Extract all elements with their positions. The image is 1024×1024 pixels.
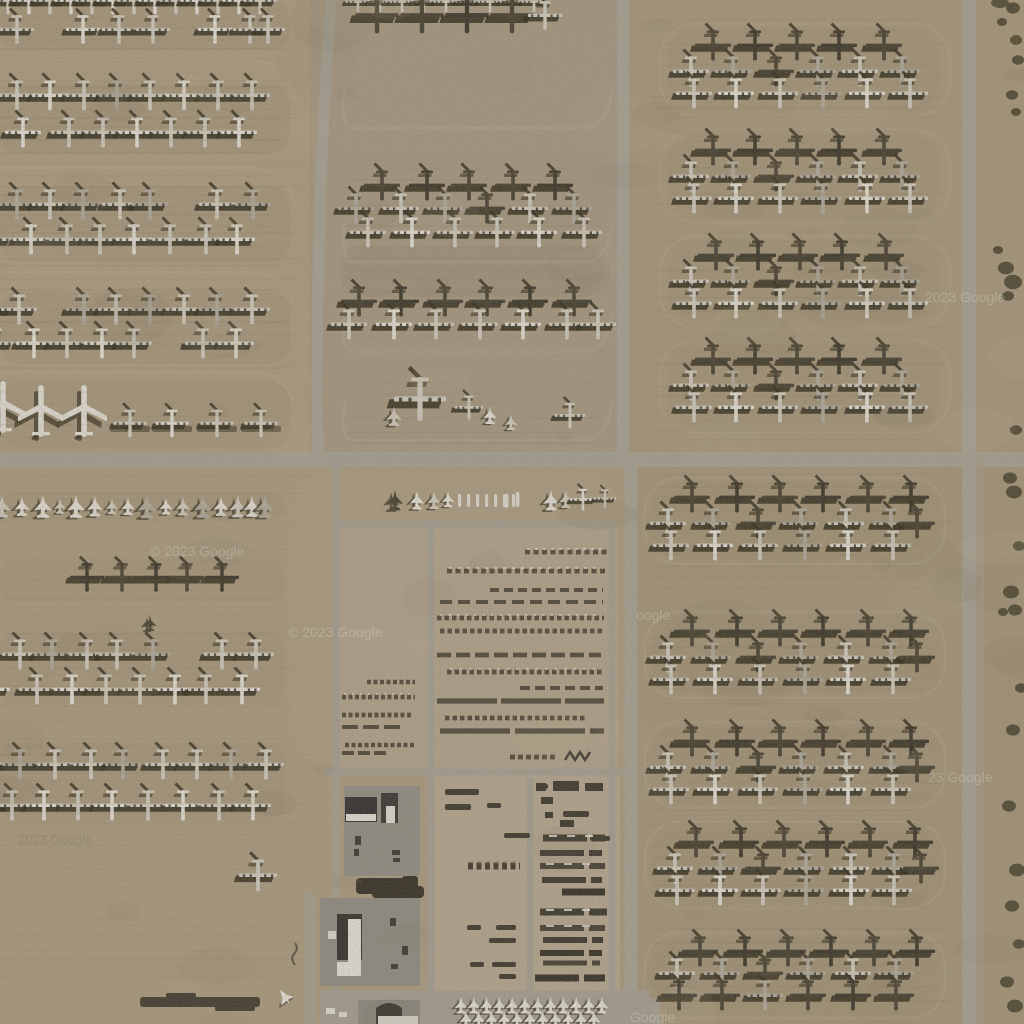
svg-text:oogle: oogle [636,607,670,623]
svg-text:2023 Google: 2023 Google [18,832,92,847]
svg-text:23 Google: 23 Google [928,769,993,785]
svg-text:2023 Google: 2023 Google [925,289,1005,305]
svg-text:Google: Google [630,1009,675,1024]
svg-text:© 2023 Google: © 2023 Google [288,624,383,640]
svg-text:© 2023 Google: © 2023 Google [150,543,245,559]
